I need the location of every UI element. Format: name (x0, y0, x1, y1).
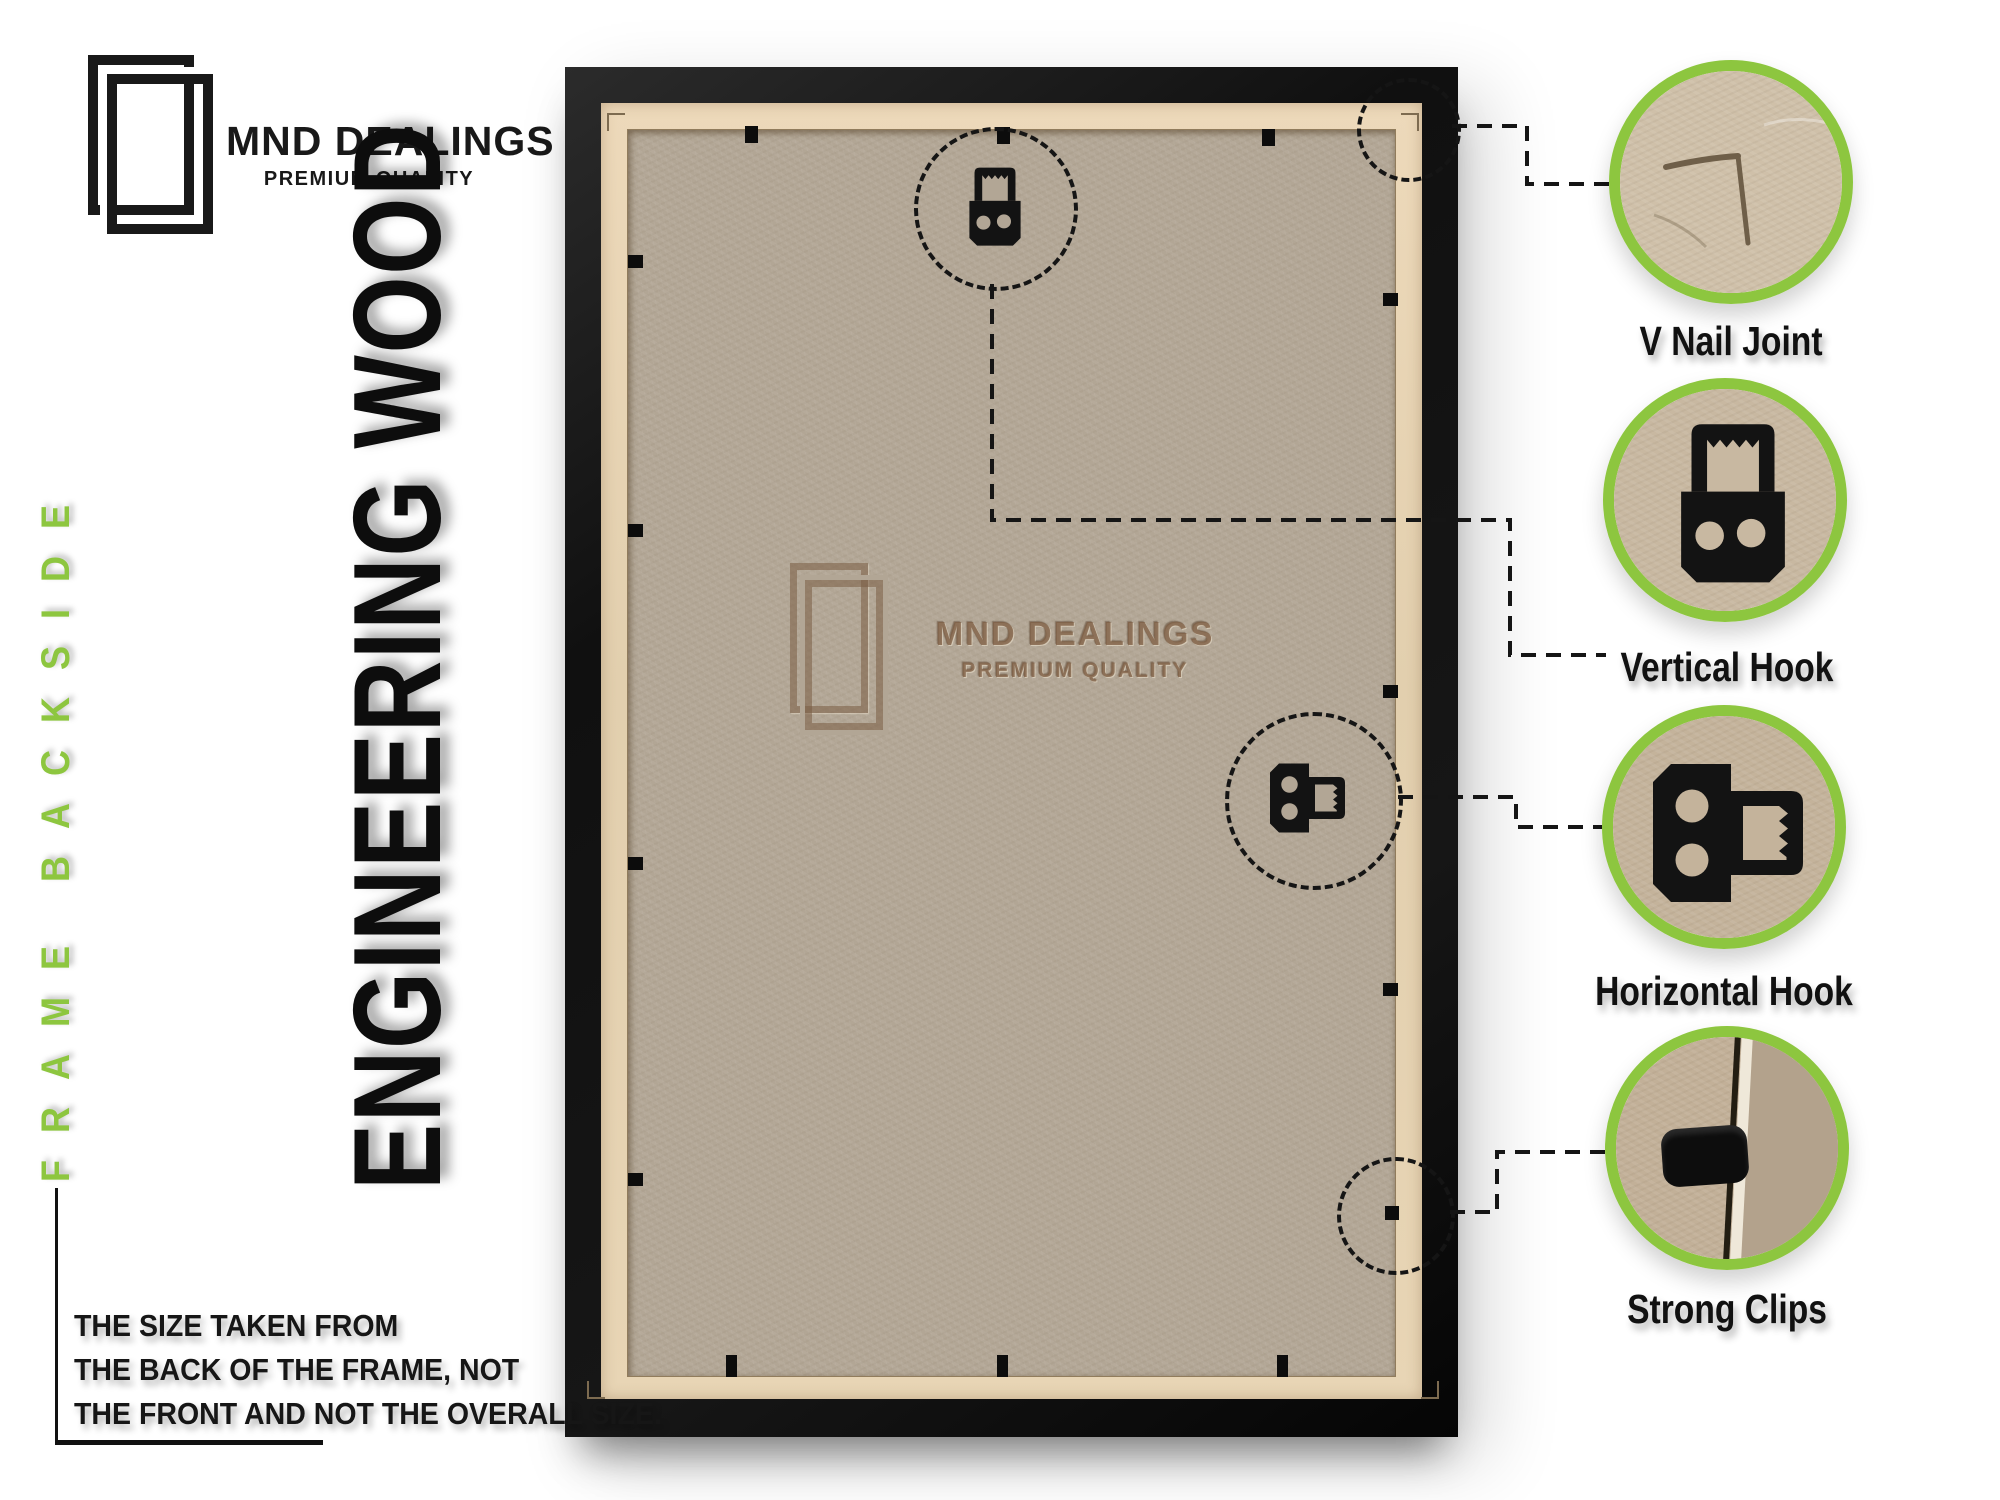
highlight-circle-vertical-hook (914, 127, 1078, 291)
product-infographic-page: { "header": { "brand": "MND DEALINGS", "… (0, 0, 2000, 1500)
highlight-circle-strong-clip (1337, 1157, 1455, 1275)
footnote: THE SIZE TAKEN FROM THE BACK OF THE FRAM… (74, 1304, 662, 1436)
horizontal-hook-photo (1607, 710, 1841, 944)
callout-vertical-hook (1603, 378, 1847, 622)
v-nail-joint-photo (1614, 65, 1848, 299)
callout-horizontal-hook (1602, 705, 1846, 949)
callout-v-nail-joint (1609, 60, 1853, 304)
frame-clip (726, 1355, 737, 1377)
footnote-line: THE BACK OF THE FRAME, NOT (74, 1348, 662, 1392)
frame-backside-label: FRAME BACKSIDE (36, 478, 76, 1182)
callout-strong-clips (1605, 1026, 1849, 1270)
watermark-frame-icon-front (805, 580, 883, 730)
vertical-hook-photo (1608, 383, 1842, 617)
frame-clip (1383, 293, 1398, 306)
frame-clip (628, 1173, 643, 1186)
engineering-wood-label: ENGINEERING WOOD (336, 123, 460, 1190)
footnote-line: THE SIZE TAKEN FROM (74, 1304, 662, 1348)
footnote-bracket-vertical (55, 1188, 58, 1443)
frame-clip (628, 255, 643, 268)
frame-clip (1262, 129, 1275, 146)
frame-clip (1383, 983, 1398, 996)
highlight-circle-corner-joint (1357, 78, 1461, 182)
frame-clip (628, 524, 643, 537)
corner-joint-mark (1421, 1381, 1439, 1399)
frame-clip (628, 857, 643, 870)
frame-clip (745, 126, 758, 143)
frame-clip (997, 1355, 1008, 1377)
callout-label-vertical-hook: Vertical Hook (1555, 644, 1899, 691)
watermark: MND DEALINGS PREMIUM QUALITY (790, 559, 1230, 769)
watermark-brand: MND DEALINGS (930, 615, 1220, 653)
frame-clip (1383, 685, 1398, 698)
callout-label-strong-clips: Strong Clips (1555, 1286, 1899, 1333)
footnote-bracket-horizontal (55, 1440, 323, 1445)
corner-joint-mark (607, 113, 625, 131)
callout-label-horizontal-hook: Horizontal Hook (1552, 968, 1896, 1015)
highlight-circle-horizontal-hook (1225, 712, 1403, 890)
strong-clip-photo (1610, 1031, 1844, 1265)
callout-label-v-nail-joint: V Nail Joint (1559, 318, 1903, 365)
footnote-line: THE FRONT AND NOT THE OVERALL SIZE. (74, 1392, 662, 1436)
watermark-tagline: PREMIUM QUALITY (930, 659, 1220, 683)
double-frame-icon-front (107, 74, 213, 234)
frame-clip (1277, 1355, 1288, 1377)
frame-backside-photo: MND DEALINGS PREMIUM QUALITY (565, 67, 1458, 1437)
